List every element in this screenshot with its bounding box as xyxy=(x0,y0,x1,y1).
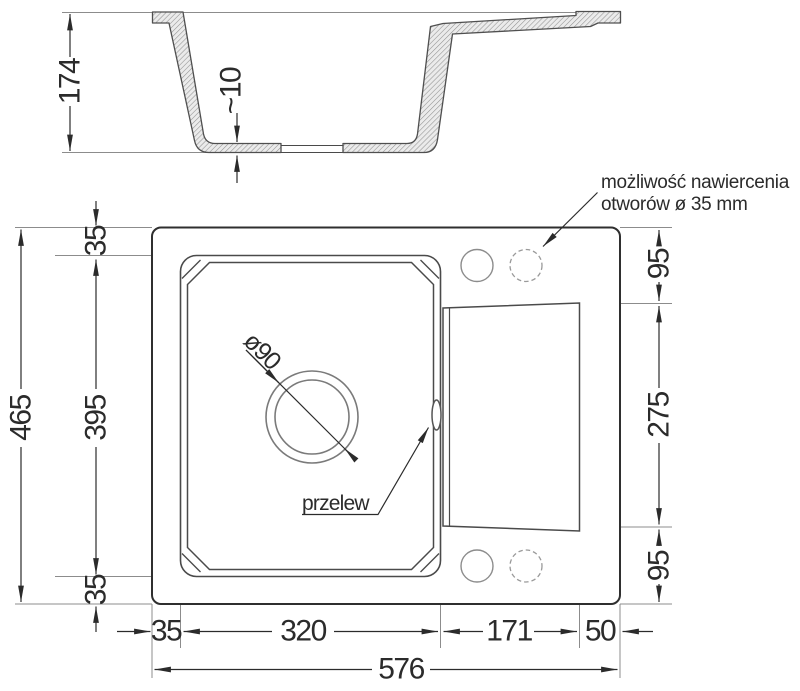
dim-total-height-label: 465 xyxy=(5,394,38,440)
dim-drainboard-width-label: 171 xyxy=(486,615,532,648)
cross-section-view: 174 ~10 xyxy=(54,12,621,184)
faucet-hole xyxy=(461,550,493,582)
overflow-label: przelew xyxy=(302,492,370,515)
section-right-wall-and-drainboard xyxy=(343,12,621,153)
dim-bowl-width-label: 320 xyxy=(280,615,326,648)
dim-rim-bottom-label: 35 xyxy=(80,574,113,605)
drill-note-line2: otworów ø 35 mm xyxy=(601,194,747,215)
dim-bowl-height-label: 395 xyxy=(80,394,113,440)
dim-drainboard-height-label: 275 xyxy=(643,391,676,437)
dim-depth-label: 174 xyxy=(54,58,87,104)
optional-hole-dashed xyxy=(510,250,542,282)
dim-right-ledge-label: 50 xyxy=(585,615,616,648)
drain-outer-circle xyxy=(266,371,358,463)
overflow-slot xyxy=(432,400,441,430)
dim-rim-top-label: 35 xyxy=(80,225,113,256)
dim-thickness-label: ~10 xyxy=(215,67,248,114)
optional-hole-dashed xyxy=(510,550,542,582)
drill-note-line1: możliwość nawiercenia xyxy=(601,172,790,193)
drawing-canvas: 174 ~10 xyxy=(0,0,800,691)
dim-rim-left-label: 35 xyxy=(151,615,182,648)
dim-band-bottom-label: 95 xyxy=(643,550,676,581)
dim-band-top-label: 95 xyxy=(643,248,676,279)
faucet-hole xyxy=(461,250,493,282)
dim-total-width-label: 576 xyxy=(378,653,424,686)
drainboard-panel xyxy=(443,303,580,531)
plan-view xyxy=(152,228,620,605)
sink-technical-drawing: 174 ~10 xyxy=(0,0,800,691)
